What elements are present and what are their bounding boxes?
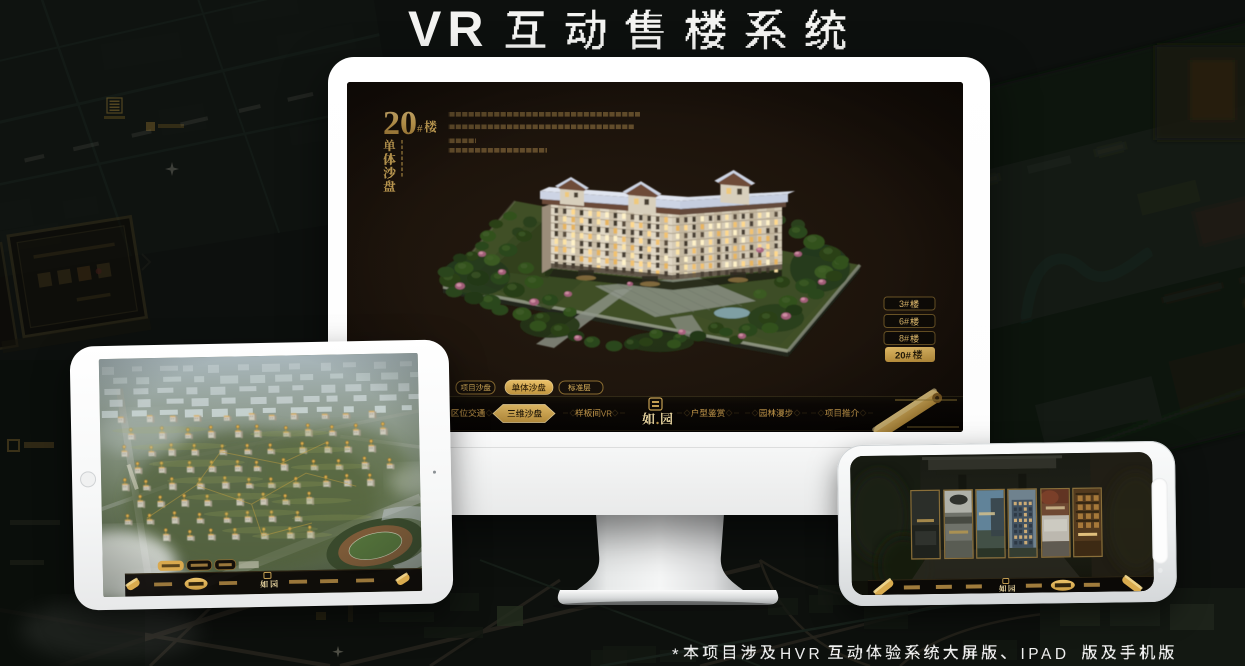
- svg-text:HVR: HVR: [780, 646, 823, 663]
- svg-text:VR: VR: [408, 1, 489, 57]
- svg-text:*: *: [672, 645, 679, 664]
- svg-text:IPAD: IPAD: [1021, 646, 1070, 663]
